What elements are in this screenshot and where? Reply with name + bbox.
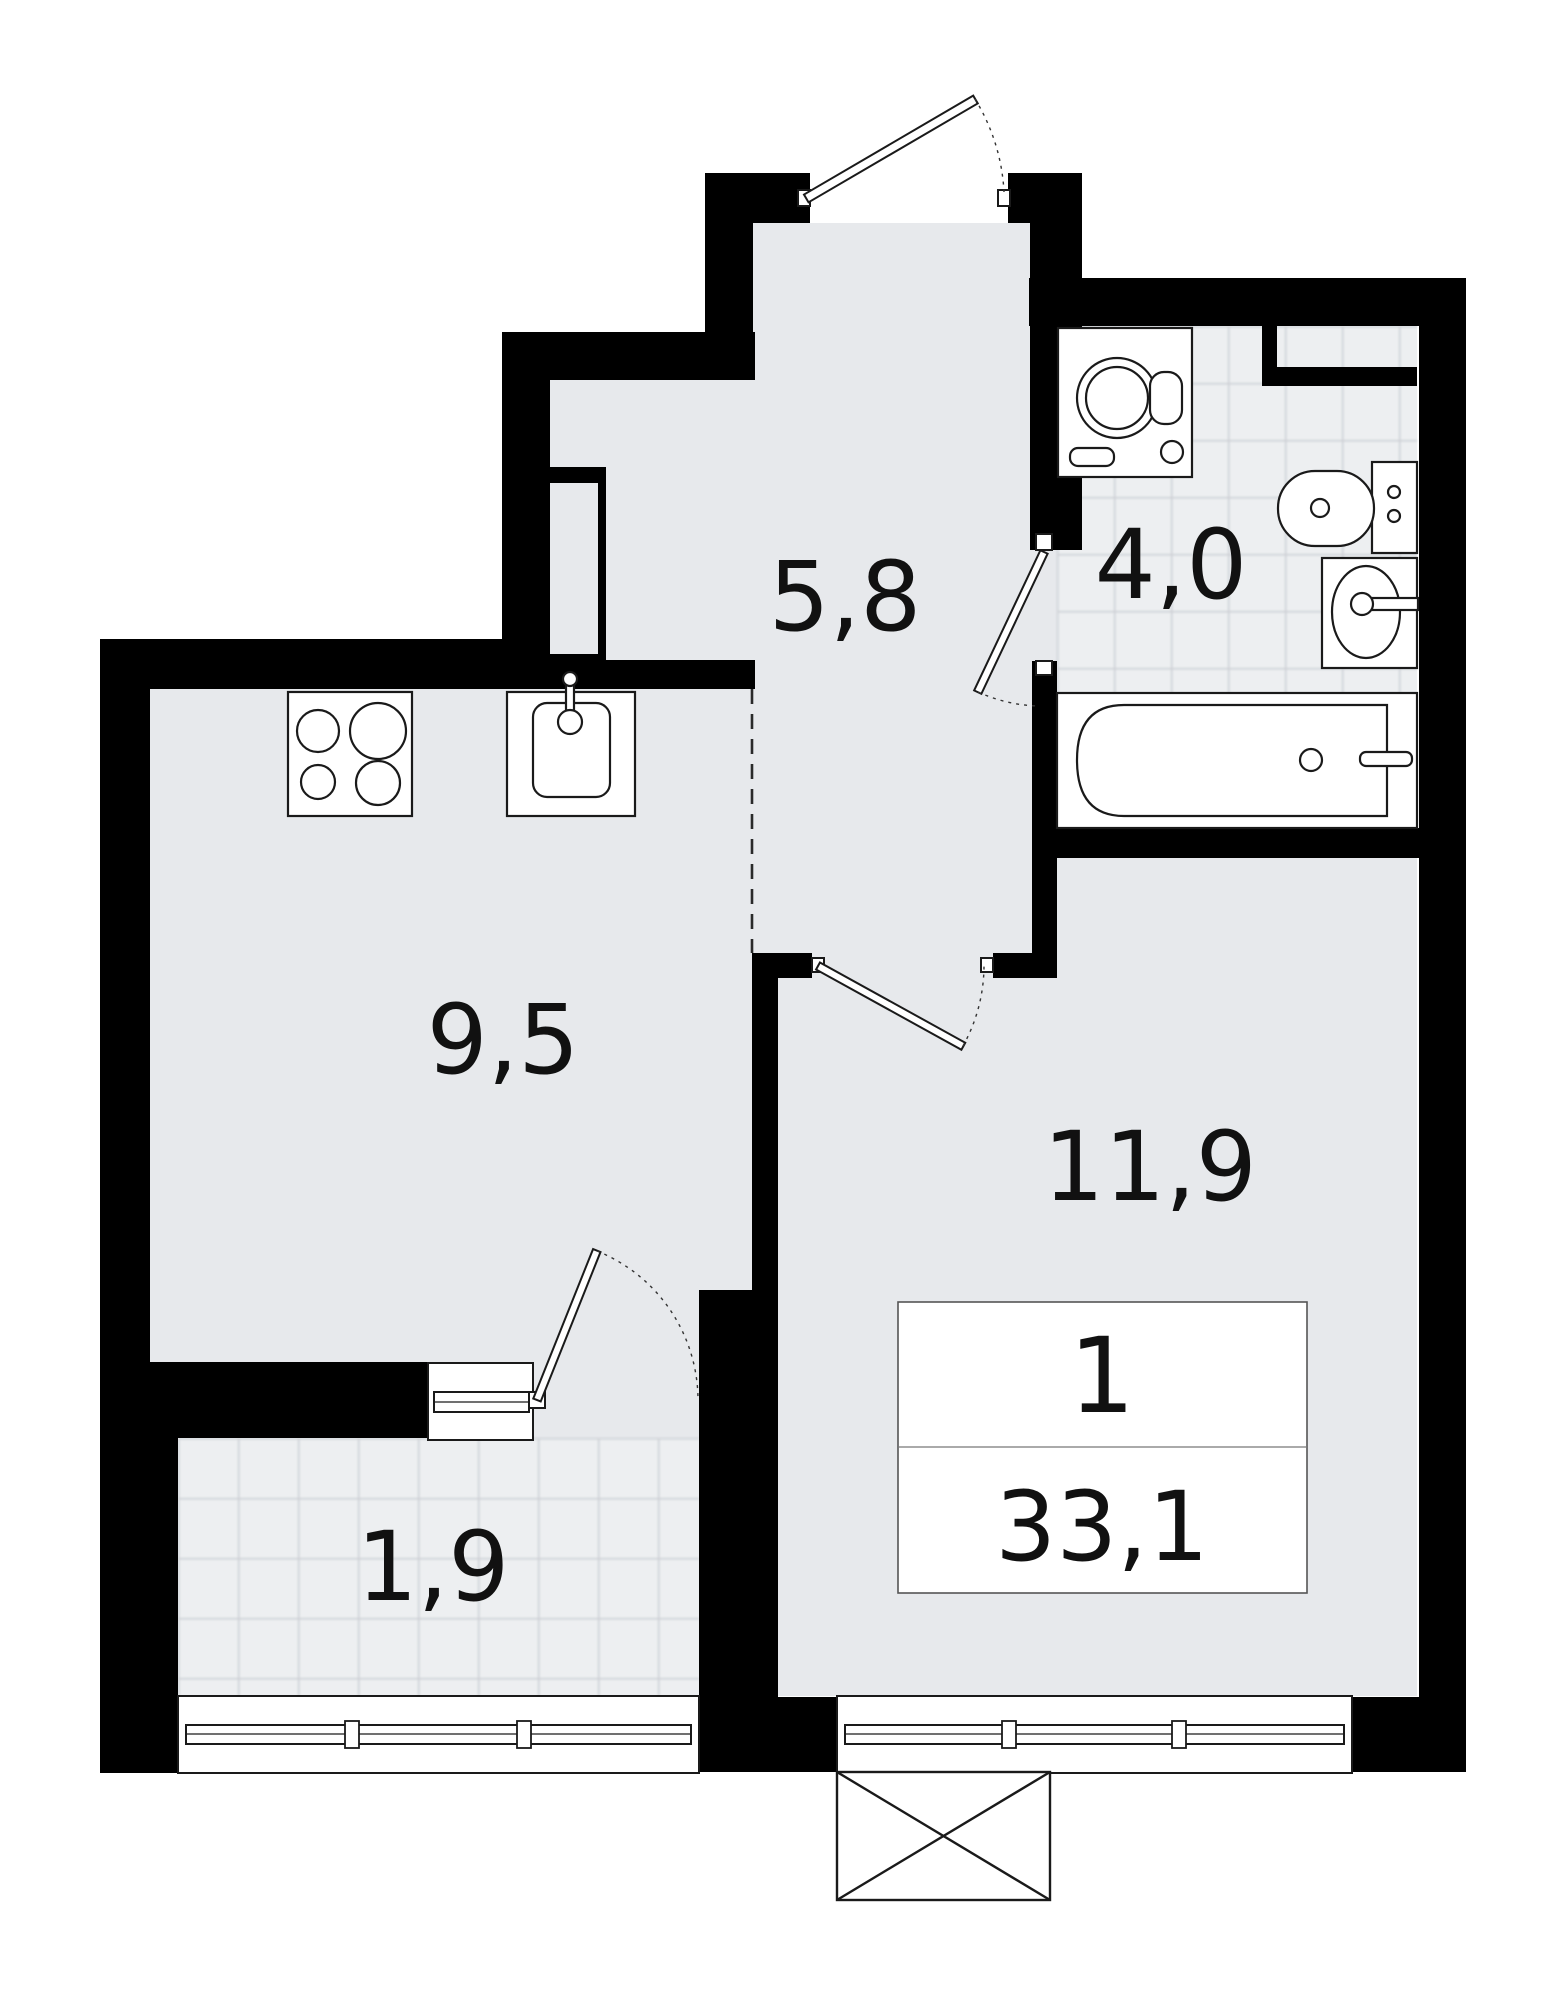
washing-machine-drum-inner [1086,367,1148,429]
hallway-floor-ext-upper [550,380,752,467]
wall-entrance-right [1008,173,1082,223]
summary-total-area: 33,1 [995,1471,1209,1583]
wall-living-door-left-stub [752,953,812,978]
summary-rooms-count: 1 [1069,1315,1135,1437]
washing-machine-door-handle [1150,372,1182,424]
hallway-area-label: 5,8 [769,541,922,653]
bathtub-inner [1077,705,1387,816]
entrance-door-swing-arc [975,99,1004,192]
living-room-window [837,1696,1352,1773]
summary-box: 1 33,1 [898,1302,1307,1593]
toilet [1278,462,1417,553]
wall-shelf-stub [1262,326,1277,386]
wall-shelf-bar [1277,367,1417,386]
washing-machine-knob [1161,441,1183,463]
kitchen-area-label: 9,5 [427,984,580,1096]
toilet-flush-hole [1311,499,1329,517]
balcony-door-threshold [533,1362,699,1438]
living-room-floor-upper [1057,858,1417,978]
balcony-glazing-mullion [517,1721,531,1748]
bathtub [1057,693,1417,828]
wall-shaft-right [598,467,606,663]
living-area-label: 11,9 [1043,1111,1257,1223]
shaft-interior [550,483,598,657]
wall-right-outer [1419,278,1466,1697]
wall-shaft-bottom [550,654,606,662]
stove-burner [297,710,339,752]
living-window-mullion [1172,1721,1186,1748]
entrance-door-leaf [804,96,978,203]
wall-kitchen-left [100,639,150,1362]
floor-plan-canvas: 5,8 4,0 9,5 11,9 1,9 1 33,1 [0,0,1565,2000]
bathroom-door-jamb [1036,661,1052,675]
bathroom-sink [1322,558,1418,668]
stove-burner [356,761,400,805]
bathtub-drain [1300,749,1322,771]
bathroom-door-hinge [1036,534,1052,550]
balcony-glazing [178,1696,699,1773]
washing-machine [1058,328,1192,477]
stove-burner [301,765,335,799]
bathroom-sink-faucet [1372,598,1418,610]
toilet-tank [1372,462,1417,553]
wall-hallway-left-upper [705,173,753,332]
entrance-door [798,96,1010,206]
living-window-mullion [1002,1721,1016,1748]
kitchen-faucet-base [558,710,582,734]
stove-burner [350,703,406,759]
bathroom-sink-drain [1351,593,1373,615]
wall-balcony-living-divider [699,1438,778,1697]
floor-plan-page: 5,8 4,0 9,5 11,9 1,9 1 33,1 [0,0,1565,2000]
wall-under-shaft [550,660,755,689]
wall-bathroom-top [1029,278,1424,326]
wall-kitchen-top [100,639,550,689]
wall-footing-right [1352,1697,1466,1772]
wall-balcony-door-jamb [699,1290,778,1438]
wall-kitchen-living-divider [752,978,778,1298]
kitchen-sink [507,672,635,816]
washing-machine-tray [1070,448,1114,466]
wall-shaft-top [550,467,606,483]
toilet-button [1388,510,1400,522]
wall-bathroom-bottom [1032,828,1419,858]
toilet-button [1388,486,1400,498]
balcony-area-label: 1,9 [357,1511,510,1623]
wall-bathroom-left-lower [1032,661,1057,978]
bathroom-area-label: 4,0 [1095,509,1248,621]
entrance-door-jamb [998,190,1010,206]
kitchen-balcony-window-unit [428,1363,533,1440]
wall-balcony-left [100,1438,178,1773]
bathtub-faucet [1360,752,1412,766]
balcony-glazing-mullion [345,1721,359,1748]
hallway-floor-ext-lower [606,467,752,660]
wall-kitchen-bottom [100,1362,428,1438]
kitchen-faucet-knob [563,672,577,686]
living-door-jamb [981,958,993,972]
wall-footing-left [699,1697,837,1772]
ac-basket [837,1772,1050,1900]
wall-left-vertical [502,332,550,689]
stove [288,692,412,816]
